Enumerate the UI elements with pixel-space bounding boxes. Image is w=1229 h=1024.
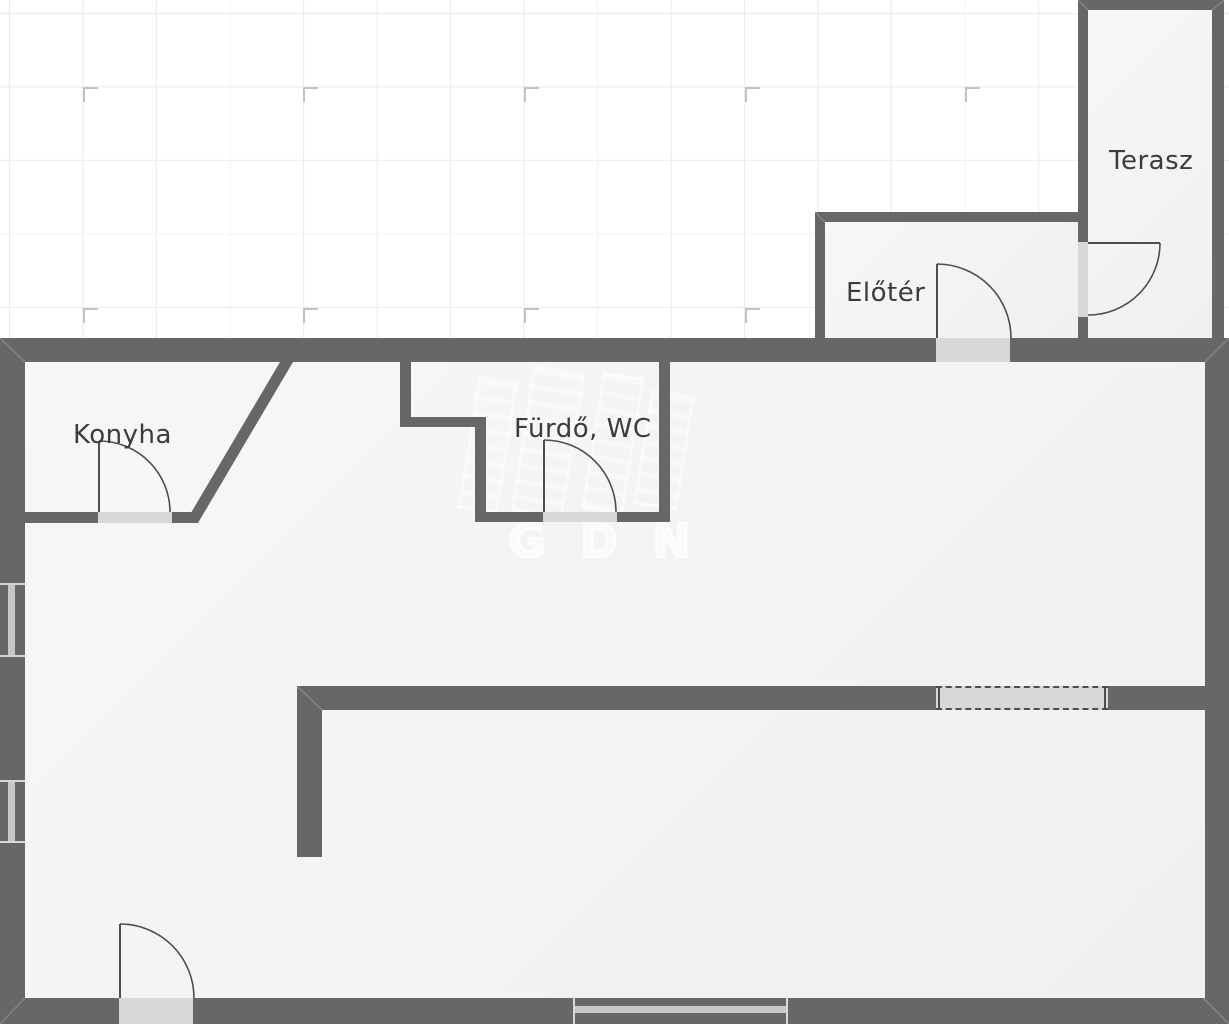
grid-mark <box>965 87 980 102</box>
furdo-right-wall <box>659 362 670 522</box>
eloter-top-wall <box>815 212 1088 222</box>
grid-mark <box>745 308 760 323</box>
watermark-text: GDN <box>508 514 724 568</box>
room-label-furdo-wc: Fürdő, WC <box>514 414 652 444</box>
room-label-eloter: Előtér <box>846 278 925 308</box>
partition-vertical-wall <box>297 686 322 857</box>
window-glass <box>8 782 15 841</box>
eloter-door-opening <box>936 338 1010 362</box>
main-top-wall <box>0 338 1229 362</box>
grid-mark <box>83 308 98 323</box>
grid-mark <box>745 87 760 102</box>
furdo-left-upper-wall <box>400 362 411 418</box>
grid-mark <box>524 308 539 323</box>
room-label-terasz: Terasz <box>1109 146 1193 176</box>
window-frame <box>0 655 25 657</box>
eloter-left-wall <box>815 212 825 338</box>
window-glass <box>575 1006 786 1013</box>
terasz-door-opening <box>1078 242 1088 317</box>
sliding-door-end-cap <box>938 688 940 708</box>
main-right-wall <box>1205 338 1229 1024</box>
konyha-door-opening <box>98 512 172 523</box>
entry-door-opening <box>119 998 193 1024</box>
furdo-step-wall <box>400 417 486 427</box>
terasz-top-wall <box>1078 0 1224 10</box>
floor-plan: GDN <box>0 0 1229 1024</box>
window-frame <box>786 998 788 1024</box>
window-glass <box>8 585 15 655</box>
room-label-konyha: Konyha <box>73 420 172 450</box>
furdo-left-lower-wall <box>475 427 486 512</box>
window-frame <box>0 841 25 843</box>
grid-mark <box>303 308 318 323</box>
grid-mark <box>524 87 539 102</box>
sliding-door <box>936 686 1108 710</box>
grid-mark <box>303 87 318 102</box>
sliding-door-end-cap <box>1104 688 1106 708</box>
main-left-wall <box>0 338 25 1024</box>
furdo-door-opening <box>543 512 617 522</box>
grid-mark <box>83 87 98 102</box>
terasz-right-wall <box>1212 0 1224 338</box>
